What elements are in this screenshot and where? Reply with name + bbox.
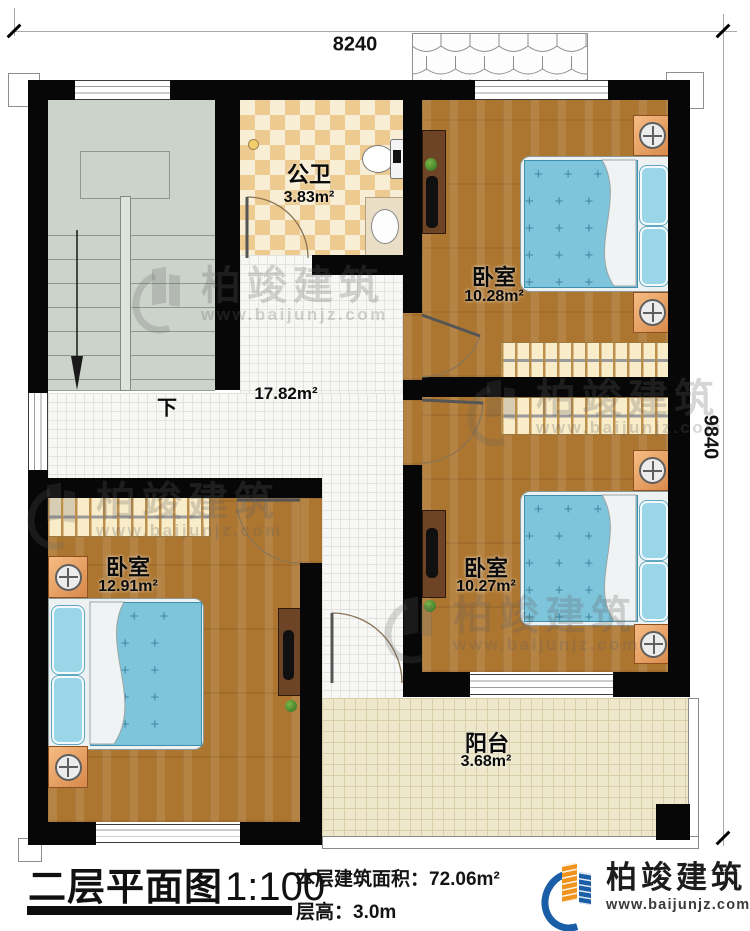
blanket	[602, 495, 636, 621]
floor-height-label: 层高：	[296, 902, 353, 923]
floor-area-line: 本层建筑面积：72.06m²	[296, 864, 500, 891]
page-title: 二层平面图1:100	[28, 856, 325, 911]
balcony-area-label: 3.68m²	[461, 753, 512, 771]
plan-title: 二层平面图	[28, 856, 223, 911]
door-swing	[332, 613, 402, 683]
blanket	[90, 602, 125, 744]
stair-down-arrow	[71, 230, 83, 390]
blanket	[602, 160, 636, 286]
door-swing	[422, 336, 480, 377]
bedroom-top-right-area-label: 10.28m²	[464, 288, 524, 306]
door-leaf	[422, 400, 483, 403]
bedroom-bottom-left-area-label: 12.91m²	[98, 578, 158, 596]
stair-down-label: 下	[157, 392, 177, 421]
title-underline	[27, 906, 292, 915]
bedroom-mid-right-area-label: 10.27m²	[456, 578, 516, 596]
floor-height-value: 3.0m	[353, 902, 396, 923]
company-logo-icon	[542, 860, 600, 924]
floor-area-value: 72.06m²	[429, 869, 500, 890]
company-name: 柏竣建筑	[606, 860, 750, 896]
floorplan-sheet: 8240 9840	[0, 0, 750, 931]
company-website: www.baijunjz.com	[606, 897, 750, 913]
floor-height-line: 层高：3.0m	[296, 897, 396, 924]
floor-area-label: 本层建筑面积：	[296, 869, 429, 890]
bathroom-name-label: 公卫	[287, 157, 331, 189]
plan-linework	[0, 0, 750, 931]
hallway-area-label: 17.82m²	[254, 384, 317, 404]
door-leaf	[422, 315, 480, 336]
door-swing	[422, 403, 483, 463]
company-logo: 柏竣建筑 www.baijunjz.com	[542, 860, 750, 924]
door-swing	[237, 500, 300, 563]
bathroom-area-label: 3.83m²	[284, 189, 335, 207]
